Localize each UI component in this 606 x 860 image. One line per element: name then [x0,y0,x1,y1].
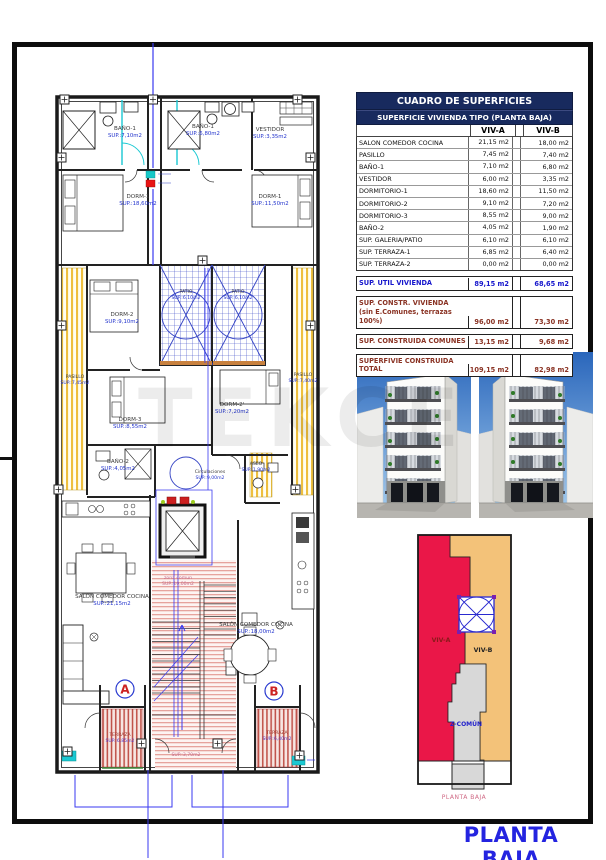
viv-a-label: VIV-A [432,637,451,644]
surface-table: CUADRO DE SUPERFICIES SUPERFICIE VIVIEND… [356,92,573,377]
unit-b-marker: B [269,685,278,699]
room-label: DORM-2'SUP.:7,20m2 [215,402,249,416]
table-row: SUP. GALERIA/PATIO6,10 m26,10 m2 [357,234,572,246]
summary-constr: SUP. CONSTR. VIVIENDA (sin E.Comunes, te… [356,296,573,329]
plan-sheet: A B BAÑO-1SUP.:7,10m2 BAÑO-1SUP.:6,80m2 … [0,0,606,860]
unit-a-marker: A [120,683,130,697]
elevator-symbol [457,595,496,634]
room-label: TERRAZASUP.:6,40m2 [263,731,292,743]
comun-label: Z-COMÚN [450,721,482,728]
col-viv-b: VIV-B [524,126,572,135]
room-label: BAÑO-2SUP.:4,05m2 [101,459,135,473]
table-row: SUP. TERRAZA-20,00 m20,00 m2 [357,258,572,270]
room-label: TERRAZASUP.:6,85m2 [106,733,135,745]
room-label: VESTIDORSUP.:3,35m2 [253,127,287,141]
room-label: PASILLOSUP.:7,40m2 [289,373,318,385]
table-row: SALON COMEDOR COCINA21,15 m218,00 m2 [357,137,572,148]
table-row: SUP. TERRAZA-16,85 m26,40 m2 [357,246,572,258]
table-row: DORMITORIO-118,60 m211,50 m2 [357,185,572,197]
table-row: DORMITORIO-38,55 m29,00 m2 [357,209,572,221]
table-row: VESTIDOR6,00 m23,35 m2 [357,173,572,185]
room-label: zona comunSUP.:10,00m2 [162,576,194,588]
sheet-title: PLANTA BAJA [432,823,590,860]
room-label: DORM-1SUP.:11,50m2 [251,194,288,208]
table-row: BAÑO-24,05 m21,90 m2 [357,221,572,233]
room-label: SALÓN COMEDOR COCINASUP.:18,00m2 [219,622,293,636]
room-label: SALÓN COMEDOR COCINASUP.:21,15m2 [75,594,149,608]
room-label: DORM-2SUP.:9,10m2 [105,312,139,326]
room-label: SUP.:3,70m2 [172,753,201,759]
floor-plan-drawing: A B [30,25,342,860]
room-label: DORM-1SUP.:18,60m2 [119,194,156,208]
room-label: DORM-3SUP.:8,55m2 [113,417,147,431]
room-label: BAÑO-1SUP.:6,80m2 [186,124,220,138]
viv-b-label: VIV-B [474,647,493,654]
table-row: DORMITORIO-29,10 m27,20 m2 [357,197,572,209]
unit-diagram: VIV-A VIV-B Z-COMÚN [414,532,514,795]
table-subtitle: SUPERFICIE VIVIENDA TIPO (PLANTA BAJA) [356,110,573,125]
summary-util: SUP. UTIL VIVIENDA 89,15 m2 68,65 m2 [356,276,573,291]
room-label: PATIOSUP.:6,10m2 [224,290,253,302]
table-body: SALON COMEDOR COCINA21,15 m218,00 m2 PAS… [356,137,573,271]
summary-total: SUPERFIVIE CONSTRUIDA TOTAL 109,15 m2 82… [356,354,573,378]
room-label: PASILLOSUP.:7,45m2 [61,375,90,387]
table-row: BAÑO-17,10 m26,80 m2 [357,160,572,172]
table-row: PASILLO7,45 m27,40 m2 [357,148,572,160]
col-viv-a: VIV-A [470,125,515,136]
diagram-caption: PLANTA BAJA [414,794,514,801]
table-column-headers: VIV-A VIV-B [356,125,573,137]
room-label: BAÑO-1SUP.:7,10m2 [108,126,142,140]
fold-mark [0,457,13,460]
summary-comunes: SUP. CONSTRUIDA COMUNES 13,15 m2 9,68 m2 [356,334,573,349]
table-title: CUADRO DE SUPERFICIES [356,92,573,110]
room-label: CirculacionesSUP.:9,00m2 [195,470,226,482]
room-label: PATIOSUP.:6,10m2 [172,290,201,302]
room-label: ASEOSUP.:1,90m2 [242,462,271,474]
